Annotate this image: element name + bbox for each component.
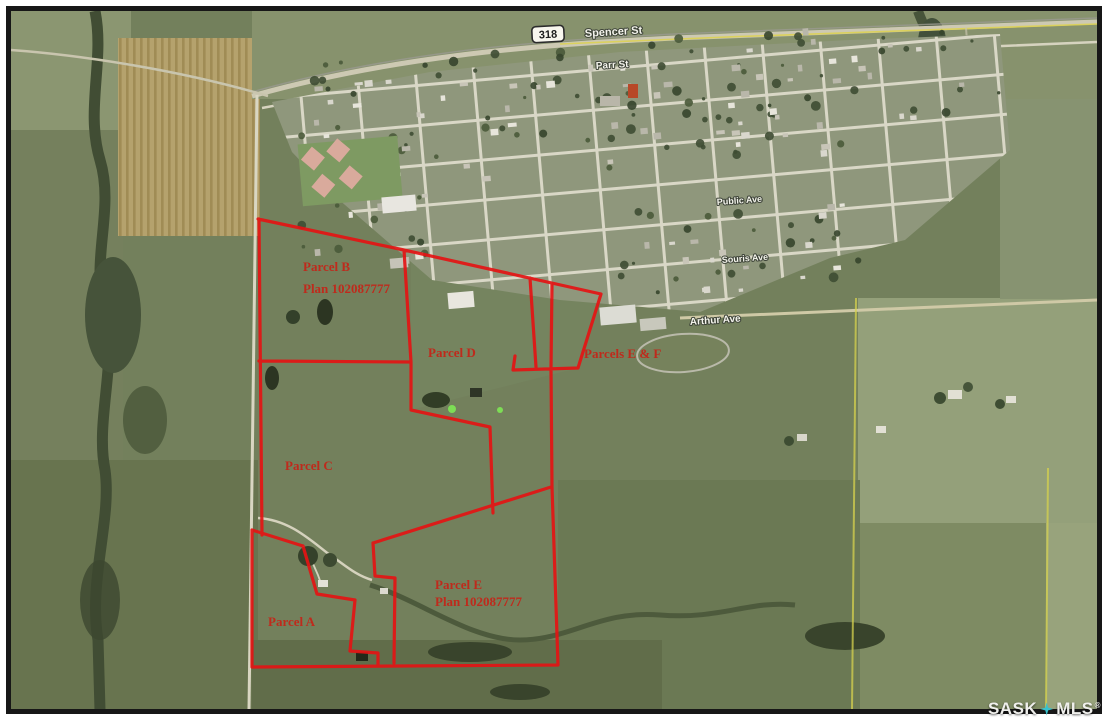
house-block: [348, 212, 353, 218]
house-block: [546, 81, 555, 89]
tree-blob: [832, 236, 837, 241]
house-block: [651, 65, 658, 70]
tree-blob: [702, 97, 705, 100]
house-block: [867, 73, 872, 80]
tree-blob: [449, 57, 458, 66]
tree-blob: [733, 150, 737, 154]
tree-blob: [323, 62, 328, 67]
house-block: [314, 86, 323, 91]
house-block: [509, 83, 517, 89]
tree-blob: [627, 101, 636, 110]
tree-blob: [970, 39, 973, 42]
house-block: [746, 48, 753, 52]
listing-map-page: Parcel B Plan 102087777 Parcel D Parcels…: [0, 0, 1108, 720]
tree-blob: [499, 125, 505, 131]
tree-blob: [481, 124, 489, 132]
house-block: [770, 108, 778, 115]
house-block: [833, 78, 842, 83]
house-block: [741, 91, 750, 98]
house-block: [819, 212, 827, 219]
tree-blob: [674, 34, 683, 43]
tree-blob: [701, 145, 706, 150]
tree-blob: [829, 272, 839, 282]
four-point-star-icon: [1040, 703, 1053, 716]
house-block: [783, 133, 789, 137]
house-block: [611, 122, 618, 129]
tree-blob: [997, 91, 1000, 94]
tree-blob: [436, 72, 442, 78]
tree-blob: [804, 94, 811, 101]
tree-blob: [797, 39, 805, 47]
tree-blob: [685, 98, 693, 106]
house-block: [811, 39, 816, 45]
house-block: [743, 266, 749, 270]
parcel-c-label: Parcel C: [285, 458, 333, 473]
tree-blob: [759, 263, 766, 270]
tree-blob: [334, 245, 342, 253]
tree-blob: [410, 132, 414, 136]
tree-blob: [715, 269, 720, 274]
tree-blob: [903, 46, 909, 52]
house-block: [820, 150, 827, 157]
house-block: [736, 142, 741, 147]
tree-blob: [319, 77, 326, 84]
house-block: [833, 265, 841, 270]
house-block: [690, 239, 698, 244]
tree-blob: [326, 87, 331, 92]
house-block: [640, 128, 648, 135]
highway-318-shield: 318: [532, 25, 565, 43]
tree-blob: [647, 212, 654, 219]
plowed-field: [118, 38, 260, 236]
tree-blob: [756, 104, 763, 111]
tree-blob: [539, 130, 547, 138]
tree-blob: [575, 94, 580, 99]
tree-blob: [682, 109, 691, 118]
house-block: [756, 74, 764, 80]
house-block: [827, 204, 835, 211]
registered-mark: ®: [1095, 701, 1101, 710]
house-block: [683, 257, 690, 264]
parcel-a-label: Parcel A: [268, 614, 316, 629]
tree-blob: [881, 36, 885, 40]
house-block: [888, 44, 893, 48]
tree-blob: [514, 132, 520, 138]
tree-blob: [820, 74, 823, 77]
tree-blob: [485, 116, 490, 121]
tree-blob: [942, 108, 951, 117]
tree-blob: [684, 225, 692, 233]
house-block: [798, 65, 803, 72]
tree-blob: [834, 230, 841, 237]
house-block: [508, 123, 517, 128]
house-block: [821, 144, 830, 150]
parcel-b-plan: Plan 102087777: [303, 281, 391, 296]
tree-blob: [556, 54, 564, 62]
house-block: [829, 58, 837, 64]
house-block: [654, 92, 661, 99]
tree-blob: [585, 138, 590, 143]
tree-blob: [310, 76, 320, 86]
tree-blob: [768, 104, 772, 108]
house-block: [899, 113, 904, 119]
tree-blob: [422, 62, 427, 67]
tree-blob: [658, 62, 666, 70]
tree-blob: [741, 69, 747, 75]
tree-blob: [632, 113, 636, 117]
tree-blob: [473, 69, 477, 73]
tree-blob: [733, 209, 743, 219]
watermark-sask-text: SASK: [988, 699, 1037, 719]
tree-blob: [417, 195, 421, 199]
tree-blob: [635, 208, 643, 216]
house-block: [364, 80, 373, 87]
tree-blob: [620, 261, 629, 270]
house-block: [802, 28, 808, 35]
farm-building: [447, 291, 474, 309]
tree-blob: [726, 117, 733, 124]
tree-blob: [335, 203, 340, 208]
house-block: [775, 115, 780, 120]
house-block: [482, 176, 491, 182]
house-block: [324, 134, 330, 138]
tree-blob: [850, 86, 858, 94]
house-block: [702, 287, 707, 292]
house-block: [588, 64, 593, 71]
house-block: [910, 115, 917, 120]
tree-blob: [672, 86, 682, 96]
tree-blob: [302, 245, 306, 249]
tree-blob: [752, 228, 756, 232]
house-block: [653, 132, 661, 139]
parr-st-label: Parr St: [596, 59, 630, 72]
house-block: [710, 258, 714, 263]
tree-blob: [673, 276, 678, 281]
house-block: [315, 249, 321, 256]
tree-blob: [434, 154, 439, 159]
tree-blob: [523, 96, 526, 99]
tree-blob: [371, 216, 379, 224]
tree-blob: [811, 101, 821, 111]
house-block: [732, 130, 741, 136]
house-block: [728, 103, 735, 109]
house-block: [840, 203, 845, 207]
tree-blob: [772, 79, 781, 88]
house-block: [460, 82, 468, 86]
tree-blob: [855, 257, 861, 263]
tree-blob: [878, 48, 885, 55]
tree-blob: [705, 213, 712, 220]
elevator-building: [628, 84, 638, 98]
house-block: [731, 64, 740, 71]
house-block: [741, 132, 750, 139]
tree-blob: [664, 145, 669, 150]
parcel-e-label: Parcel E: [435, 577, 482, 592]
tree-blob: [940, 45, 946, 51]
house-block: [328, 100, 334, 105]
house-block: [353, 103, 362, 108]
tree-blob: [339, 61, 343, 65]
tree-blob: [608, 135, 615, 142]
house-block: [402, 146, 411, 152]
parcel-e-plan: Plan 102087777: [435, 594, 523, 609]
tree-blob: [781, 64, 784, 67]
tree-blob: [716, 114, 722, 120]
tree-blob: [618, 273, 625, 280]
tree-blob: [626, 124, 636, 134]
tree-blob: [632, 262, 635, 265]
parcels-e-f-label: Parcels E & F: [584, 346, 661, 361]
tree-blob: [728, 270, 736, 278]
school-building: [381, 195, 416, 214]
tree-blob: [656, 290, 660, 294]
tree-blob: [727, 83, 736, 92]
house-block: [607, 159, 613, 164]
tree-blob: [689, 49, 693, 53]
house-block: [800, 276, 805, 280]
tree-blob: [606, 165, 612, 171]
tree-blob: [298, 132, 305, 139]
aerial-map: Parcel B Plan 102087777 Parcel D Parcels…: [0, 0, 1108, 720]
parcel-d-label: Parcel D: [428, 345, 476, 360]
house-block: [851, 55, 857, 62]
house-block: [314, 120, 319, 126]
house-block: [669, 241, 675, 245]
house-block: [817, 122, 823, 129]
tree-blob: [409, 235, 416, 242]
tree-blob: [417, 239, 424, 246]
house-block: [959, 82, 964, 87]
tree-blob: [702, 117, 708, 123]
house-block: [536, 85, 541, 90]
house-block: [463, 163, 470, 168]
tree-blob: [335, 125, 340, 130]
map-scenery: Parcel B Plan 102087777 Parcel D Parcels…: [11, 11, 1097, 710]
tree-blob: [764, 31, 773, 40]
tree-blob: [910, 106, 917, 113]
house-block: [441, 95, 446, 101]
house-block: [739, 288, 744, 292]
house-block: [644, 242, 650, 249]
house-block: [386, 79, 392, 84]
house-block: [422, 194, 428, 198]
house-block: [805, 242, 813, 248]
house-block: [420, 113, 425, 118]
tree-blob: [491, 50, 500, 59]
tree-blob: [939, 30, 944, 35]
arena-building: [599, 304, 636, 325]
sask-mls-watermark: SASK MLS ®: [988, 699, 1101, 719]
house-block: [664, 82, 673, 88]
shield-number: 318: [539, 29, 558, 42]
house-block: [738, 121, 743, 125]
tree-blob: [351, 91, 357, 97]
house-block: [788, 78, 794, 82]
house-block: [716, 130, 725, 135]
house-block: [490, 129, 498, 136]
house-block: [505, 105, 510, 112]
parcel-b-label: Parcel B: [303, 259, 350, 274]
watermark-mls-text: MLS: [1056, 699, 1093, 719]
tree-blob: [788, 222, 794, 228]
tree-blob: [837, 140, 844, 147]
tree-blob: [786, 238, 795, 247]
tree-blob: [765, 132, 774, 141]
house-block: [916, 47, 922, 52]
tree-blob: [957, 87, 963, 93]
tree-blob: [648, 42, 655, 49]
house-block: [858, 66, 866, 72]
